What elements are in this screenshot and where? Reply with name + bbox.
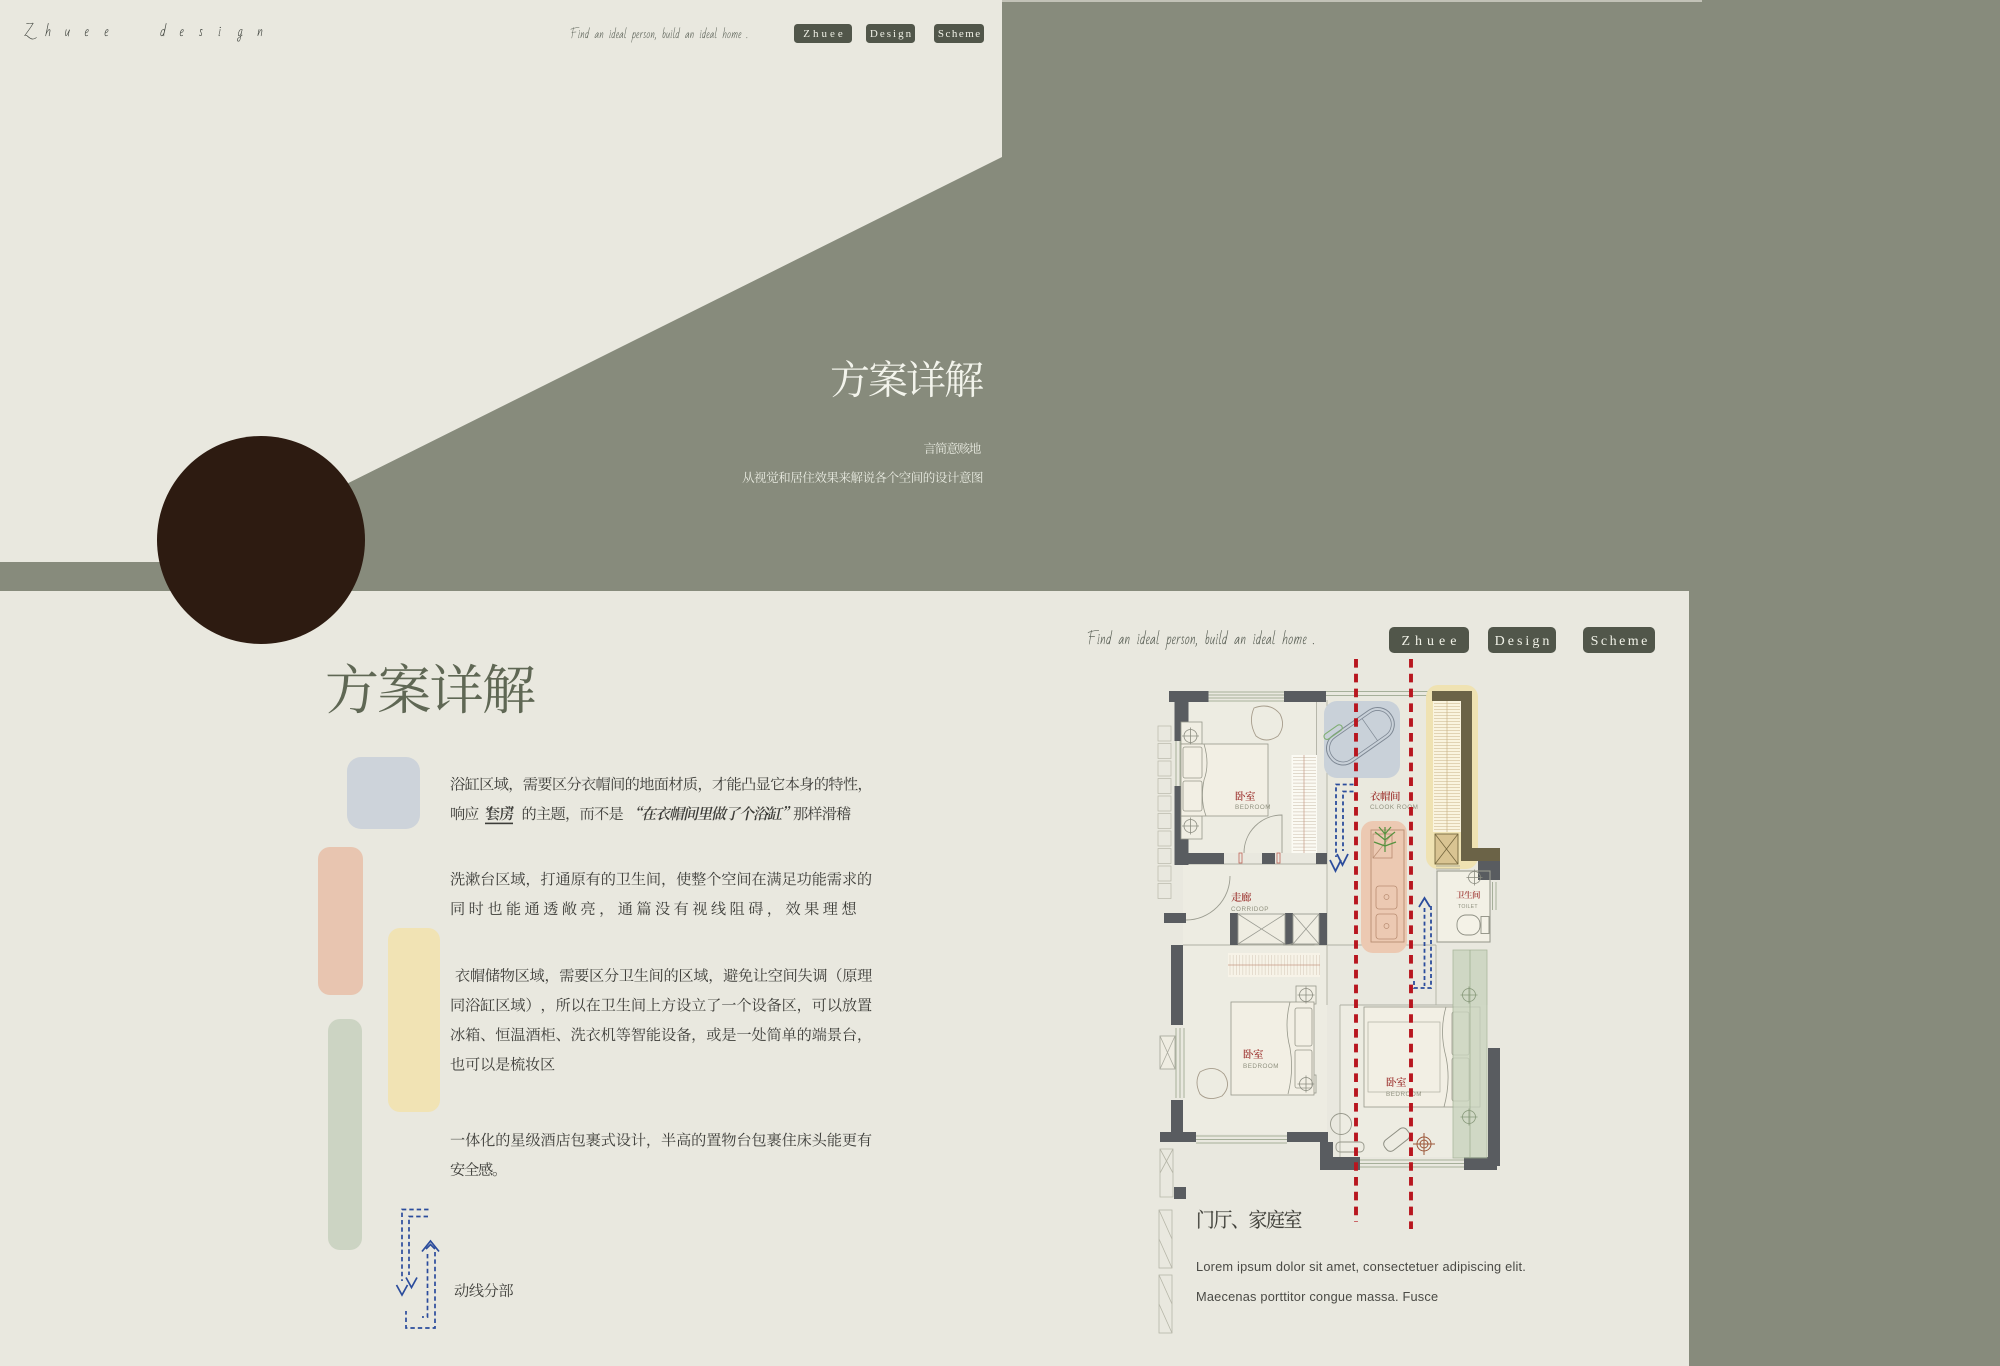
svg-text:Design: Design <box>870 28 913 40</box>
svg-text:CORRIDOP: CORRIDOP <box>1231 906 1269 913</box>
svg-text:Scheme: Scheme <box>1591 634 1650 649</box>
svg-text:Zhuee: Zhuee <box>803 28 845 40</box>
svg-text:TOILET: TOILET <box>1458 904 1478 910</box>
svg-text:Scheme: Scheme <box>938 28 982 40</box>
svg-text:BEDROOM: BEDROOM <box>1243 1063 1279 1070</box>
svg-text:BEDROOM: BEDROOM <box>1386 1091 1422 1098</box>
svg-text:Zhuee: Zhuee <box>1402 634 1462 649</box>
svg-text:BEDROOM: BEDROOM <box>1235 804 1271 811</box>
svg-text:Design: Design <box>1495 634 1553 649</box>
